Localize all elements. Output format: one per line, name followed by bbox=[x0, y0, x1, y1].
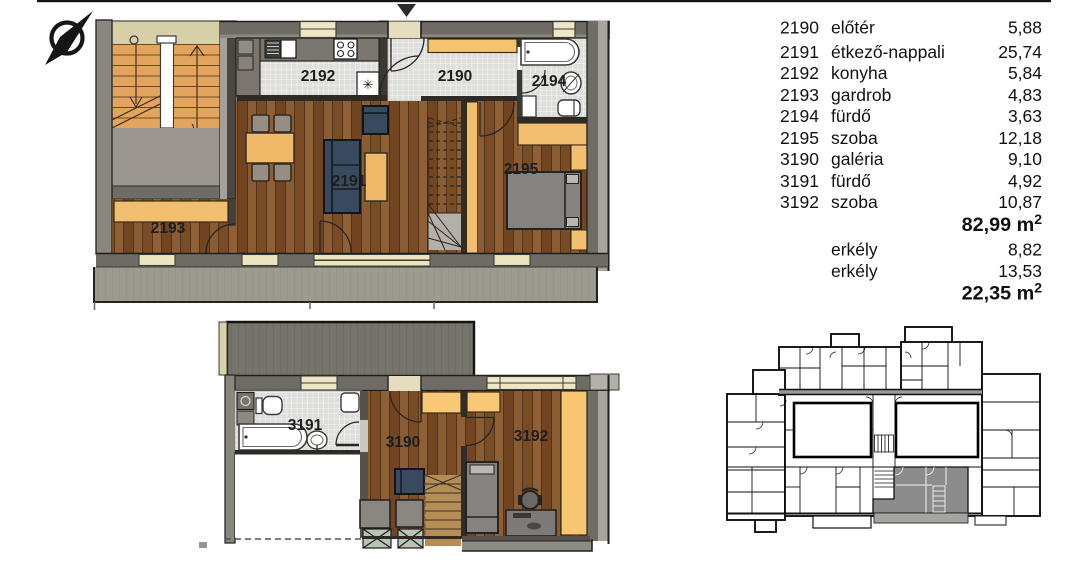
svg-text:4,92: 4,92 bbox=[1008, 171, 1042, 191]
svg-text:fürdő: fürdő bbox=[831, 171, 871, 191]
svg-text:5,84: 5,84 bbox=[1008, 63, 1042, 83]
svg-text:2192: 2192 bbox=[301, 68, 335, 85]
svg-text:konyha: konyha bbox=[831, 63, 888, 83]
svg-text:szoba: szoba bbox=[831, 192, 878, 212]
svg-text:22,35 m2: 22,35 m2 bbox=[962, 279, 1043, 304]
svg-text:9,10: 9,10 bbox=[1008, 149, 1042, 169]
svg-text:3192: 3192 bbox=[514, 428, 548, 445]
svg-text:galéria: galéria bbox=[831, 149, 884, 169]
svg-text:3,63: 3,63 bbox=[1008, 106, 1042, 126]
svg-text:10,87: 10,87 bbox=[998, 192, 1042, 212]
svg-text:2195: 2195 bbox=[780, 128, 819, 148]
svg-text:2194: 2194 bbox=[780, 106, 819, 126]
svg-text:13,53: 13,53 bbox=[998, 261, 1042, 281]
svg-text:erkély: erkély bbox=[831, 261, 878, 281]
svg-text:3190: 3190 bbox=[780, 149, 819, 169]
svg-text:3191: 3191 bbox=[780, 171, 819, 191]
svg-text:2191: 2191 bbox=[780, 42, 819, 62]
svg-text:gardrob: gardrob bbox=[831, 85, 891, 105]
svg-text:3192: 3192 bbox=[780, 192, 819, 212]
svg-text:fürdő: fürdő bbox=[831, 106, 871, 126]
svg-text:erkély: erkély bbox=[831, 239, 878, 259]
svg-text:előtér: előtér bbox=[831, 17, 875, 37]
svg-text:3190: 3190 bbox=[386, 434, 420, 451]
svg-text:5,88: 5,88 bbox=[1008, 17, 1042, 37]
svg-text:3191: 3191 bbox=[288, 417, 323, 434]
svg-text:2193: 2193 bbox=[780, 85, 819, 105]
svg-text:2190: 2190 bbox=[438, 68, 472, 85]
svg-text:✳: ✳ bbox=[363, 77, 374, 92]
svg-text:2194: 2194 bbox=[532, 73, 567, 90]
svg-text:szoba: szoba bbox=[831, 128, 878, 148]
svg-text:8,82: 8,82 bbox=[1008, 239, 1042, 259]
svg-text:4,83: 4,83 bbox=[1008, 85, 1042, 105]
svg-text:82,99 m2: 82,99 m2 bbox=[962, 211, 1043, 236]
svg-text:2191: 2191 bbox=[332, 173, 367, 190]
svg-text:étkező-nappali: étkező-nappali bbox=[831, 42, 945, 62]
svg-text:2192: 2192 bbox=[780, 63, 819, 83]
svg-text:2193: 2193 bbox=[151, 220, 186, 237]
svg-text:2195: 2195 bbox=[504, 161, 539, 178]
svg-text:12,18: 12,18 bbox=[998, 128, 1042, 148]
svg-text:25,74: 25,74 bbox=[998, 42, 1042, 62]
svg-text:2190: 2190 bbox=[780, 17, 819, 37]
